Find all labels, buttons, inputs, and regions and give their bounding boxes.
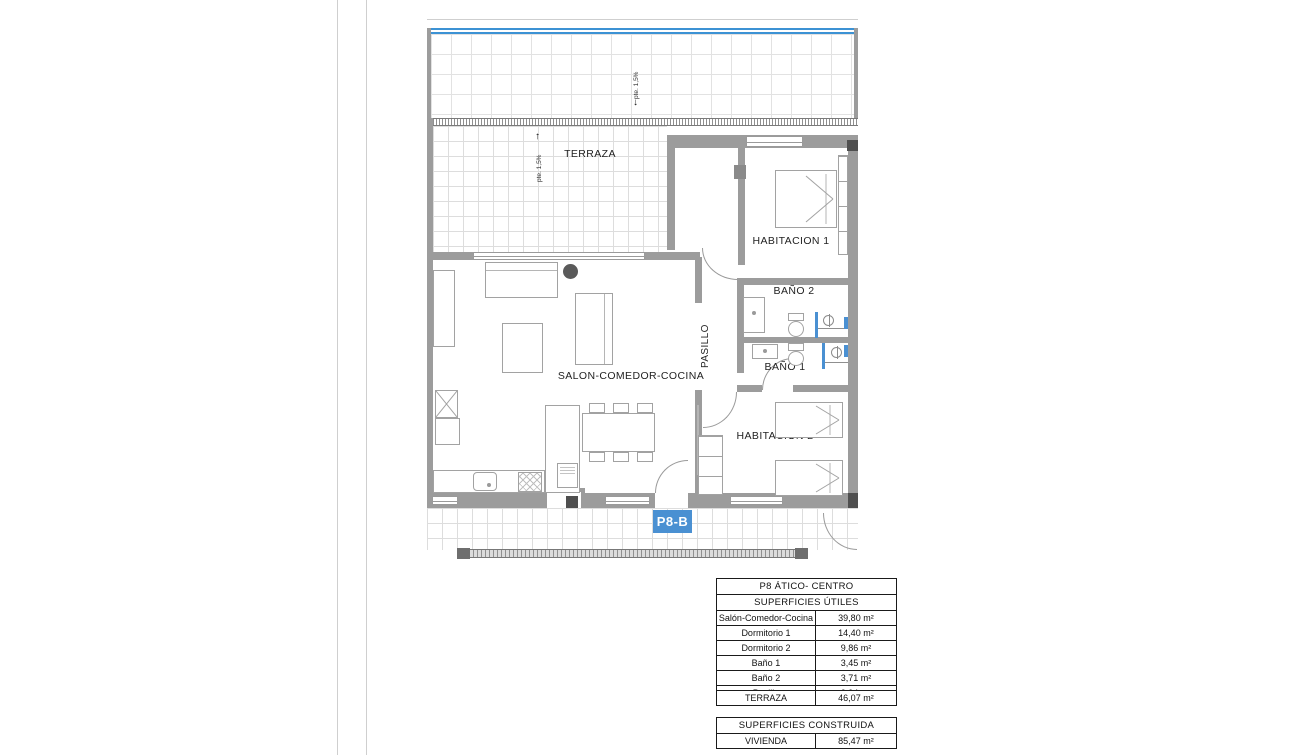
toilet-cistern (788, 343, 804, 351)
bed-fold-icon (776, 171, 836, 227)
room-label-terraza: TERRAZA (564, 148, 616, 160)
sheet-fold-line (337, 0, 338, 755)
table-row: Baño 2 3,71 m² (717, 671, 896, 686)
washer-label-lines (560, 467, 575, 475)
door-arc-entrance (655, 460, 688, 493)
terrace-grid (433, 126, 667, 252)
row-value: 14,40 m² (816, 626, 896, 640)
wall-segment (645, 252, 700, 260)
window-salon (605, 496, 650, 505)
table-title: P8 ÁTICO- CENTRO (717, 579, 896, 595)
roof-grid (431, 34, 854, 118)
door-arc-bedroom1 (702, 248, 738, 280)
wall-segment (793, 385, 848, 392)
railing-post (795, 548, 808, 559)
table-row: Baño 1 3,45 m² (717, 656, 896, 671)
slope-annotation: pte. 1,5% (633, 57, 640, 99)
table-superficies-utiles: P8 ÁTICO- CENTRO SUPERFICIES ÚTILES Saló… (716, 578, 897, 701)
roof-hatch-band (427, 118, 858, 126)
row-label: Dormitorio 2 (717, 641, 816, 655)
roof-edge-line (427, 19, 858, 20)
coffee-table (502, 323, 543, 373)
towel-bar (818, 328, 844, 329)
shower-fitting (844, 345, 848, 357)
shower-head-icon (823, 315, 834, 326)
wall-segment (433, 252, 473, 260)
chair (589, 403, 605, 413)
towel-bar (825, 362, 848, 363)
wall-segment (854, 28, 858, 118)
chair (589, 452, 605, 462)
kitchen-cabinet (433, 270, 455, 347)
corner-post (847, 140, 858, 151)
bed-single (775, 402, 843, 438)
table-superficies-construida: SUPERFICIES CONSTRUIDA VIVIENDA 85,47 m² (716, 717, 897, 749)
sheet-fold-line (366, 0, 367, 755)
row-value: 3,71 m² (816, 671, 896, 685)
toilet-bowl (788, 351, 804, 366)
sink-drain-icon (752, 311, 756, 315)
table-subtitle: SUPERFICIES ÚTILES (717, 595, 896, 611)
chair (637, 452, 653, 462)
window-kitchen (432, 496, 458, 505)
wall-segment (427, 28, 431, 118)
row-label: Baño 1 (717, 656, 816, 670)
wall-pier (734, 165, 746, 179)
unit-badge: P8-B (653, 510, 692, 533)
slope-arrow-up-icon: ↑ (535, 133, 540, 141)
window-bedroom2 (730, 496, 783, 505)
shower-screen (822, 343, 825, 369)
room-label-pasillo: PASILLO (700, 310, 711, 368)
table-row: Dormitorio 2 9,86 m² (717, 641, 896, 656)
row-label: Baño 2 (717, 671, 816, 685)
chair (613, 452, 629, 462)
cabinet-x (435, 390, 458, 418)
chair (637, 403, 653, 413)
bath-sink (743, 297, 765, 333)
door-arc-bedroom2 (703, 392, 737, 428)
room-label-bano2: BAÑO 2 (774, 285, 815, 297)
dining-table (582, 413, 655, 452)
row-value: 39,80 m² (816, 611, 896, 625)
gallery-grid (427, 508, 858, 550)
bed-fold-icon (776, 461, 842, 495)
kitchen-sink (473, 472, 497, 491)
wardrobe (838, 155, 848, 255)
table-terraza: TERRAZA 46,07 m² (716, 690, 897, 706)
row-label: TERRAZA (717, 691, 816, 705)
sink-drain-icon (763, 349, 767, 353)
wall-bath1-left (737, 343, 744, 373)
table-row: Salón-Comedor-Cocina 39,80 m² (717, 611, 896, 626)
toilet-bowl (788, 321, 804, 337)
wall-terrace-right (667, 135, 675, 250)
table-row: TERRAZA 46,07 m² (717, 691, 896, 705)
row-value: 85,47 m² (816, 734, 896, 748)
bed-single (775, 460, 843, 496)
row-label: Dormitorio 1 (717, 626, 816, 640)
shower-fitting (844, 317, 848, 329)
sofa (575, 293, 613, 365)
room-label-salon: SALON-COMEDOR-COCINA (558, 370, 704, 382)
sink-drain-icon (487, 483, 491, 487)
sofa (485, 262, 558, 298)
column-square (566, 496, 578, 508)
table-row: VIVIENDA 85,47 m² (717, 734, 896, 748)
chair (613, 403, 629, 413)
bed-fold-icon (776, 403, 842, 437)
wall-bath2-top (737, 278, 848, 285)
kitchen-cabinet (435, 418, 460, 445)
table-title: SUPERFICIES CONSTRUIDA (717, 718, 896, 734)
toilet-cistern (788, 313, 804, 321)
column-dot (563, 264, 578, 279)
railing-post (457, 548, 470, 559)
floor-plan: pte. 1,5% ↓ TERRAZA ↑ pte. 1,5% (427, 15, 858, 570)
wardrobe (698, 435, 723, 495)
stove (518, 472, 542, 492)
row-value: 9,86 m² (816, 641, 896, 655)
wall-right-outer (848, 135, 858, 508)
wall-segment (737, 385, 762, 392)
x-mark-icon (436, 391, 457, 417)
row-value: 3,45 m² (816, 656, 896, 670)
entrance-opening (655, 493, 688, 508)
wall-salon-pasillo (695, 257, 702, 303)
window-bedroom1 (746, 136, 803, 147)
shower-head-icon (831, 347, 842, 358)
shower-screen (815, 312, 818, 338)
room-label-habitacion1: HABITACION 1 (753, 235, 830, 247)
row-value: 46,07 m² (816, 691, 896, 705)
slope-annotation: pte. 1,5% (536, 144, 543, 182)
row-label: Salón-Comedor-Cocina (717, 611, 816, 625)
gallery-railing (460, 549, 808, 558)
bed-double (775, 170, 837, 228)
slope-arrow-down-icon: ↓ (633, 99, 638, 107)
table-row: Dormitorio 1 14,40 m² (717, 626, 896, 641)
row-label: VIVIENDA (717, 734, 816, 748)
sliding-door-terrace (473, 252, 645, 260)
corner-post (848, 493, 858, 508)
